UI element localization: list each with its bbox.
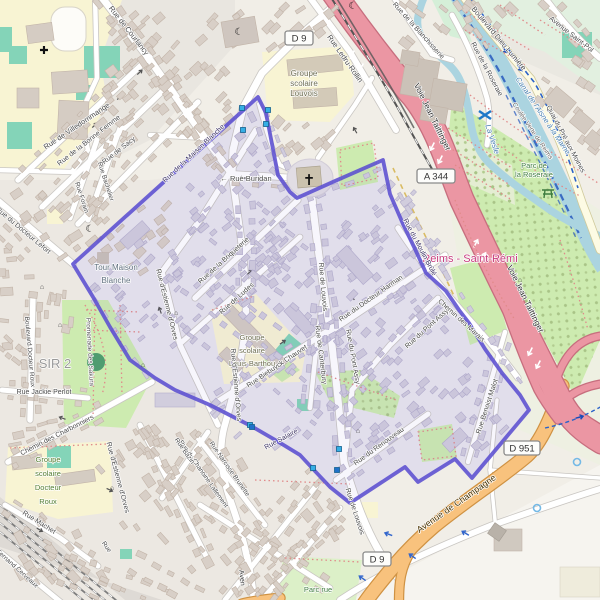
svg-text:Parc de: Parc de [521, 161, 547, 170]
svg-text:← Rue Buridan: ← Rue Buridan [220, 174, 271, 183]
svg-text:✚: ✚ [39, 45, 48, 57]
svg-text:✝: ✝ [303, 172, 316, 189]
svg-text:A 344: A 344 [424, 172, 448, 183]
svg-text:Louvois: Louvois [290, 89, 318, 98]
svg-text:scolaire: scolaire [239, 346, 265, 355]
svg-text:Rue Jackie Perlot: Rue Jackie Perlot [17, 389, 72, 396]
svg-text:la Roseraie: la Roseraie [515, 170, 553, 179]
svg-text:☾: ☾ [349, 1, 358, 12]
svg-text:Groupe: Groupe [35, 455, 60, 464]
svg-text:☾: ☾ [86, 224, 95, 235]
svg-text:Groupe: Groupe [291, 69, 318, 78]
svg-text:Parc rue: Parc rue [304, 585, 332, 594]
svg-text:⌂: ⌂ [110, 485, 114, 492]
svg-text:Aven: Aven [237, 570, 245, 586]
svg-text:scolaire: scolaire [290, 79, 318, 88]
svg-text:scolaire: scolaire [35, 469, 61, 478]
svg-text:⌂: ⌂ [141, 362, 145, 369]
svg-text:Reims - Saint-Rémi: Reims - Saint-Rémi [422, 253, 517, 265]
svg-text:Groupe: Groupe [239, 333, 264, 342]
svg-text:D 9: D 9 [370, 555, 385, 566]
svg-text:Roux: Roux [39, 497, 57, 506]
svg-text:⌂: ⌂ [40, 284, 44, 291]
svg-text:D 951: D 951 [509, 444, 534, 455]
svg-text:☾: ☾ [235, 27, 244, 38]
svg-text:Docteur: Docteur [35, 483, 62, 492]
svg-text:⌂: ⌂ [174, 310, 178, 317]
svg-text:Tour Maison: Tour Maison [94, 263, 138, 272]
svg-text:Blanche: Blanche [102, 276, 131, 285]
svg-text:D 9: D 9 [292, 34, 307, 45]
svg-text:SIR 2: SIR 2 [39, 356, 72, 371]
svg-text:⌂: ⌂ [58, 322, 62, 329]
svg-text:⌂: ⌂ [356, 428, 360, 435]
